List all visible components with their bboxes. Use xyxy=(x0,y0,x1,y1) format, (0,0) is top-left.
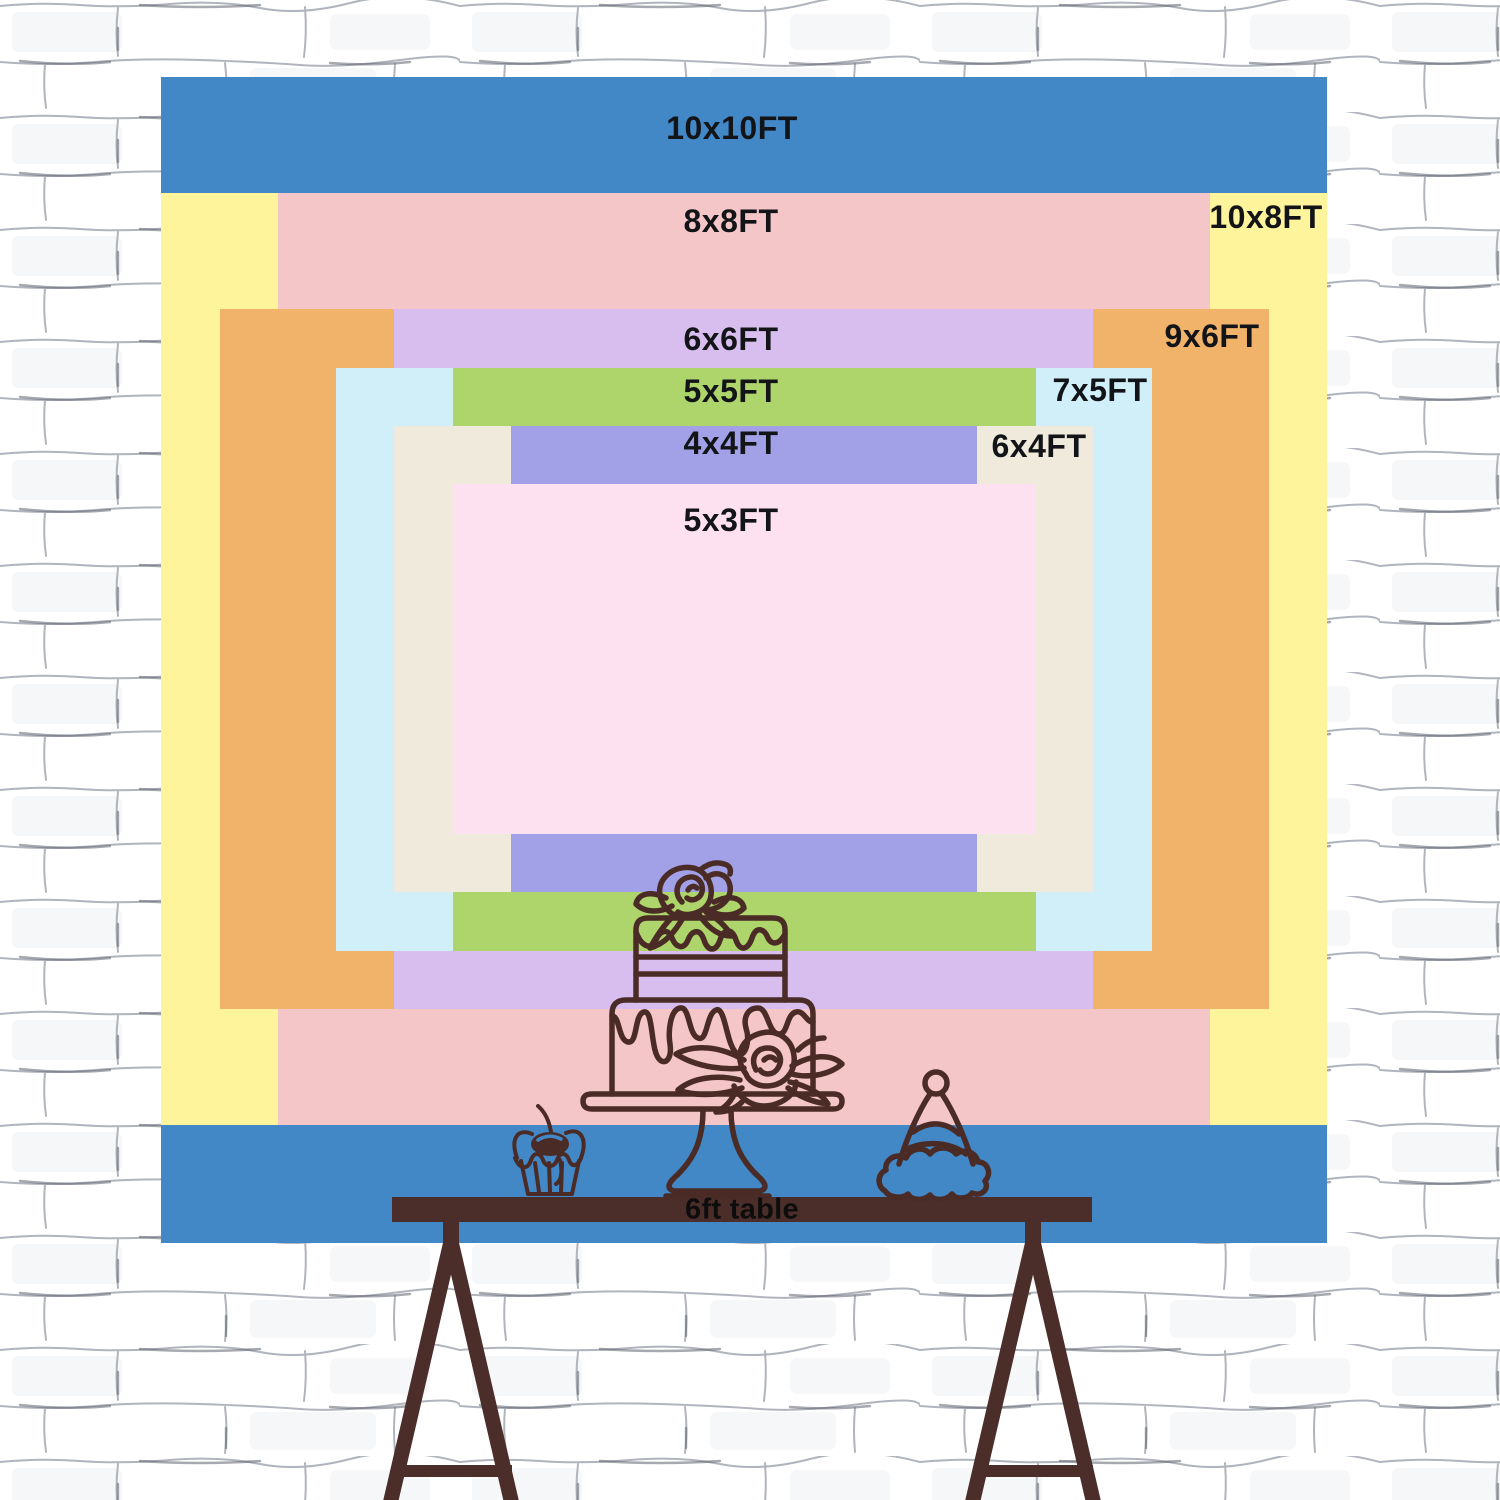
size-label-4x4: 4x4FT xyxy=(684,427,779,459)
size-label-5x3: 5x3FT xyxy=(684,504,779,536)
size-label-7x5: 7x5FT xyxy=(1053,374,1148,406)
cupcake-icon xyxy=(514,1106,583,1194)
size-label-6x4: 6x4FT xyxy=(992,430,1087,462)
size-label-9x6: 9x6FT xyxy=(1165,320,1260,352)
size-label-6x6: 6x6FT xyxy=(684,323,779,355)
size-label-10x10: 10x10FT xyxy=(666,112,798,144)
size-label-5x5: 5x5FT xyxy=(684,375,779,407)
cake-icon xyxy=(583,863,842,1196)
table-label: 6ft table xyxy=(685,1196,799,1225)
party-hat-icon xyxy=(879,1072,988,1199)
size-label-8x8: 8x8FT xyxy=(684,205,779,237)
size-label-10x8: 10x8FT xyxy=(1209,201,1322,233)
